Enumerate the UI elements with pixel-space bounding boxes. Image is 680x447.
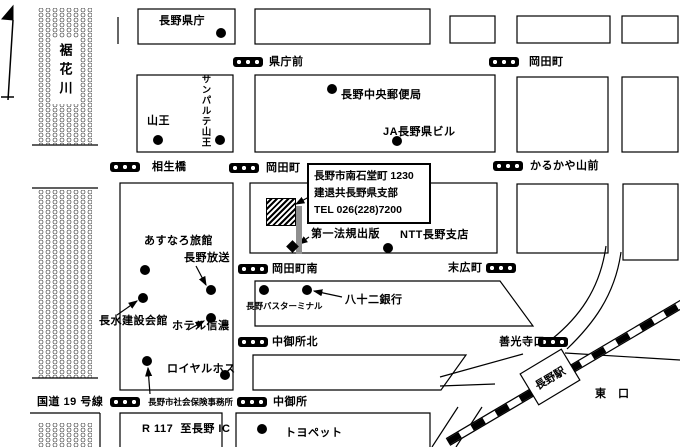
road-label: 東 口 xyxy=(595,389,630,400)
bus-stop-icon xyxy=(229,163,259,173)
north-arrow-icon xyxy=(1,6,14,100)
destination-building-marker xyxy=(266,198,296,226)
landmark-label: 八十二銀行 xyxy=(345,295,403,306)
bus-stop-label: 善光寺口 xyxy=(499,337,545,348)
landmark-dot xyxy=(138,293,148,303)
landmark-dot xyxy=(142,356,152,366)
landmark-dot xyxy=(259,285,269,295)
landmark-label: トヨペット xyxy=(285,428,343,439)
landmark-dot xyxy=(206,285,216,295)
bus-stop-label: 県庁前 xyxy=(269,57,304,68)
landmark-label: 長野県庁 xyxy=(159,16,205,27)
bus-stop-icon xyxy=(486,263,516,273)
address-callout: 長野市南石堂町 1230 建退共長野県支部 TEL 026(228)7200 xyxy=(307,163,431,224)
landmark-dot xyxy=(302,285,312,295)
landmark-label: JA長野県ビル xyxy=(383,127,456,138)
bus-stop-icon xyxy=(110,162,140,172)
landmark-dot xyxy=(327,84,337,94)
landmark-label: 長野中央郵便局 xyxy=(341,90,422,101)
bus-stop-icon xyxy=(493,161,523,171)
landmark-label: 山王 xyxy=(147,116,170,127)
bus-stop-icon xyxy=(237,397,267,407)
access-map: 裾花川 xyxy=(0,0,680,447)
landmark-label: あすなろ旅館 xyxy=(144,236,213,247)
bus-stop-label: かるかや山前 xyxy=(530,161,599,172)
bus-stop-label: 岡田町 xyxy=(529,57,564,68)
bus-stop-icon xyxy=(110,397,140,407)
callout-address-line: 長野市南石堂町 1230 xyxy=(314,171,424,182)
callout-office-line: 建退共長野県支部 xyxy=(314,188,424,199)
landmark-label: 長野バスターミナル xyxy=(246,302,323,311)
bus-stop-icon xyxy=(489,57,519,67)
landmark-label: 第一法規出版 xyxy=(311,229,380,240)
landmark-label: 長野放送 xyxy=(184,253,230,264)
callout-tel-line: TEL 026(228)7200 xyxy=(314,205,424,216)
landmark-dot xyxy=(140,265,150,275)
road-label: R 117 至長野 IC xyxy=(142,424,230,435)
landmark-label: ホテル信濃 xyxy=(172,321,230,332)
landmark-label: サンパルテ山王 xyxy=(200,74,210,148)
bus-stop-label: 末広町 xyxy=(448,263,483,274)
river-label: 裾花川 xyxy=(51,38,79,104)
bus-stop-icon xyxy=(233,57,263,67)
bus-stop-label: 相生橋 xyxy=(152,162,187,173)
landmark-label: 長水建設会館 xyxy=(99,316,168,327)
landmark-dot xyxy=(215,135,225,145)
landmark-dot xyxy=(383,243,393,253)
landmark-label: 長野市社会保険事務所 xyxy=(148,398,233,407)
bus-stop-icon xyxy=(238,337,268,347)
landmark-dot xyxy=(257,424,267,434)
bus-stop-label: 岡田町南 xyxy=(272,264,318,275)
bus-stop-icon xyxy=(238,264,268,274)
bus-stop-label: 中御所 xyxy=(273,397,308,408)
landmark-dot xyxy=(216,28,226,38)
bus-stop-label: 岡田町 xyxy=(266,163,301,174)
landmark-label: NTT長野支店 xyxy=(400,230,469,241)
landmark-dot xyxy=(153,135,163,145)
landmark-label: ロイヤルホス xyxy=(167,364,236,375)
road-label: 国道 19 号線 xyxy=(37,397,103,408)
bus-stop-label: 中御所北 xyxy=(272,337,318,348)
